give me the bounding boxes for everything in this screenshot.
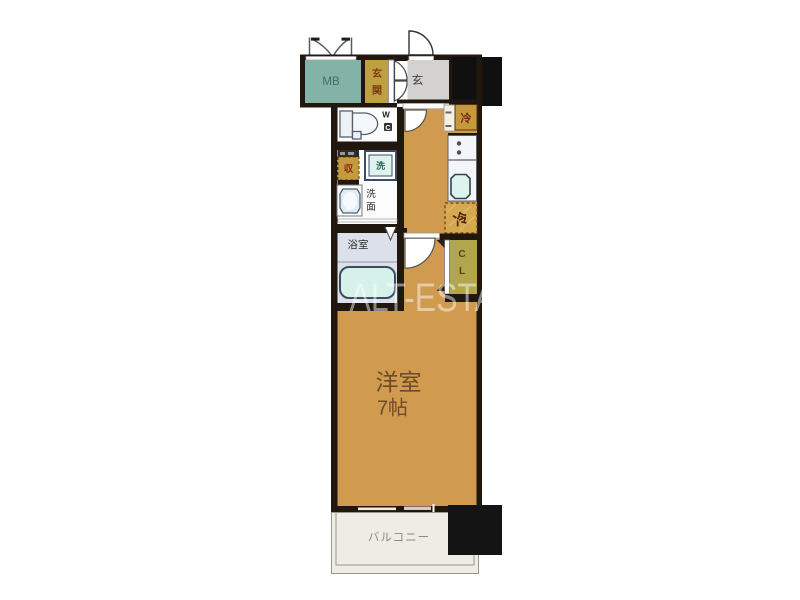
svg-text:バルコニー: バルコニー [368, 531, 430, 544]
svg-text:C: C [458, 249, 465, 260]
svg-text:浴室: 浴室 [348, 238, 369, 251]
svg-text:洗: 洗 [366, 188, 376, 200]
svg-text:W: W [382, 111, 390, 120]
svg-text:7帖: 7帖 [377, 397, 408, 420]
svg-text:玄: 玄 [412, 73, 424, 87]
svg-text:C: C [385, 123, 391, 132]
svg-text:洗: 洗 [376, 160, 385, 171]
svg-text:MB: MB [322, 76, 340, 88]
svg-text:収: 収 [344, 163, 354, 175]
svg-text:洋室: 洋室 [376, 369, 422, 395]
svg-text:面: 面 [366, 202, 376, 213]
svg-text:関: 関 [372, 85, 382, 97]
svg-text:ALT-ESTATE: ALT-ESTATE [350, 275, 535, 320]
svg-text:冷: 冷 [461, 111, 472, 125]
svg-text:玄: 玄 [372, 67, 382, 80]
